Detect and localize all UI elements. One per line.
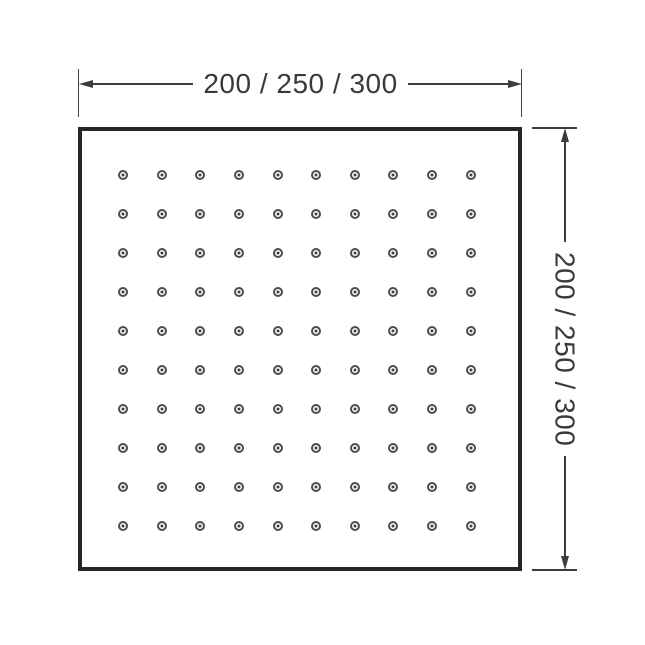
nozzle-dot [311, 443, 321, 453]
nozzle-dot [466, 521, 476, 531]
nozzle-dot [466, 365, 476, 375]
nozzle-dot [118, 209, 128, 219]
dimension-line-segment [564, 142, 566, 242]
nozzle-dot [195, 365, 205, 375]
nozzle-dot [234, 482, 244, 492]
nozzle-dot [234, 521, 244, 531]
diagram-canvas: 200 / 250 / 300 200 / 250 / 300 [0, 0, 645, 645]
nozzle-dot [311, 521, 321, 531]
nozzle-dot [466, 482, 476, 492]
nozzle-dot [273, 482, 283, 492]
nozzle-dot [427, 404, 437, 414]
nozzle-dot [234, 170, 244, 180]
nozzle-dot [195, 404, 205, 414]
arrow-down-icon [561, 556, 569, 570]
nozzle-dot [311, 209, 321, 219]
nozzle-dot [273, 248, 283, 258]
nozzle-dot [157, 521, 167, 531]
nozzle-dot [427, 443, 437, 453]
width-dimension: 200 / 250 / 300 [79, 68, 522, 100]
nozzle-dot [118, 170, 128, 180]
dimension-line-segment [93, 83, 193, 85]
extension-line-right-bottom [532, 569, 577, 571]
nozzle-dot [234, 287, 244, 297]
nozzle-dot [427, 170, 437, 180]
dimension-line-segment [408, 83, 508, 85]
nozzle-dot [311, 326, 321, 336]
height-dimension: 200 / 250 / 300 [548, 128, 582, 570]
nozzle-dot [350, 521, 360, 531]
nozzle-dot [195, 482, 205, 492]
nozzle-dot [273, 365, 283, 375]
nozzle-dot [118, 248, 128, 258]
nozzle-dot [118, 482, 128, 492]
nozzle-dot [234, 248, 244, 258]
nozzle-dot [350, 365, 360, 375]
nozzle-dot [157, 170, 167, 180]
height-dimension-label: 200 / 250 / 300 [550, 242, 579, 456]
nozzle-dot [157, 209, 167, 219]
nozzle-dot [350, 170, 360, 180]
nozzle-dot [273, 443, 283, 453]
nozzle-dot [157, 404, 167, 414]
nozzle-dot [311, 248, 321, 258]
nozzle-dot [234, 326, 244, 336]
nozzle-dot [157, 443, 167, 453]
nozzle-dot [273, 404, 283, 414]
nozzle-dot [273, 287, 283, 297]
nozzle-dot [388, 404, 398, 414]
nozzle-dot [118, 443, 128, 453]
nozzle-dot [195, 326, 205, 336]
nozzle-dot [118, 365, 128, 375]
nozzle-dot [388, 287, 398, 297]
nozzle-dot [350, 209, 360, 219]
nozzle-dot [427, 326, 437, 336]
nozzle-dot [350, 326, 360, 336]
nozzle-dot [350, 443, 360, 453]
nozzle-dot [427, 365, 437, 375]
nozzle-dot [273, 521, 283, 531]
nozzle-dot [350, 482, 360, 492]
nozzle-dot [350, 248, 360, 258]
nozzle-dot [427, 209, 437, 219]
dimension-line-segment [564, 456, 566, 556]
nozzle-dot [388, 170, 398, 180]
nozzle-dot [388, 443, 398, 453]
nozzle-dot [350, 287, 360, 297]
shower-head-outline [78, 127, 522, 571]
nozzle-dot [195, 209, 205, 219]
nozzle-dot [311, 365, 321, 375]
nozzle-dot [311, 404, 321, 414]
nozzle-dot [350, 404, 360, 414]
extension-line-top-right [521, 69, 523, 117]
nozzle-dot [195, 248, 205, 258]
nozzle-dot [118, 326, 128, 336]
nozzle-dot [427, 248, 437, 258]
nozzle-dot [118, 287, 128, 297]
nozzle-dot [388, 482, 398, 492]
nozzle-dot [466, 170, 476, 180]
nozzle-dot [195, 170, 205, 180]
nozzle-dot [273, 170, 283, 180]
nozzle-dot [427, 521, 437, 531]
extension-line-top-left [78, 69, 80, 117]
nozzle-grid [104, 155, 490, 545]
nozzle-dot [466, 248, 476, 258]
nozzle-dot [195, 443, 205, 453]
nozzle-dot [234, 404, 244, 414]
nozzle-dot [273, 326, 283, 336]
nozzle-dot [466, 404, 476, 414]
nozzle-dot [311, 170, 321, 180]
nozzle-dot [157, 287, 167, 297]
nozzle-dot [388, 248, 398, 258]
nozzle-dot [195, 521, 205, 531]
nozzle-dot [466, 287, 476, 297]
nozzle-dot [388, 521, 398, 531]
width-dimension-label: 200 / 250 / 300 [193, 69, 407, 98]
nozzle-dot [234, 365, 244, 375]
nozzle-dot [388, 365, 398, 375]
nozzle-dot [427, 482, 437, 492]
nozzle-dot [157, 326, 167, 336]
arrow-up-icon [561, 128, 569, 142]
arrow-left-icon [79, 80, 93, 88]
nozzle-dot [234, 209, 244, 219]
extension-line-right-top [532, 127, 577, 129]
nozzle-dot [311, 482, 321, 492]
nozzle-dot [466, 326, 476, 336]
nozzle-dot [427, 287, 437, 297]
nozzle-dot [388, 209, 398, 219]
nozzle-dot [157, 482, 167, 492]
nozzle-dot [388, 326, 398, 336]
nozzle-dot [157, 365, 167, 375]
nozzle-dot [466, 209, 476, 219]
nozzle-dot [273, 209, 283, 219]
nozzle-dot [311, 287, 321, 297]
nozzle-dot [466, 443, 476, 453]
nozzle-dot [157, 248, 167, 258]
nozzle-dot [118, 404, 128, 414]
nozzle-dot [195, 287, 205, 297]
nozzle-dot [118, 521, 128, 531]
nozzle-dot [234, 443, 244, 453]
